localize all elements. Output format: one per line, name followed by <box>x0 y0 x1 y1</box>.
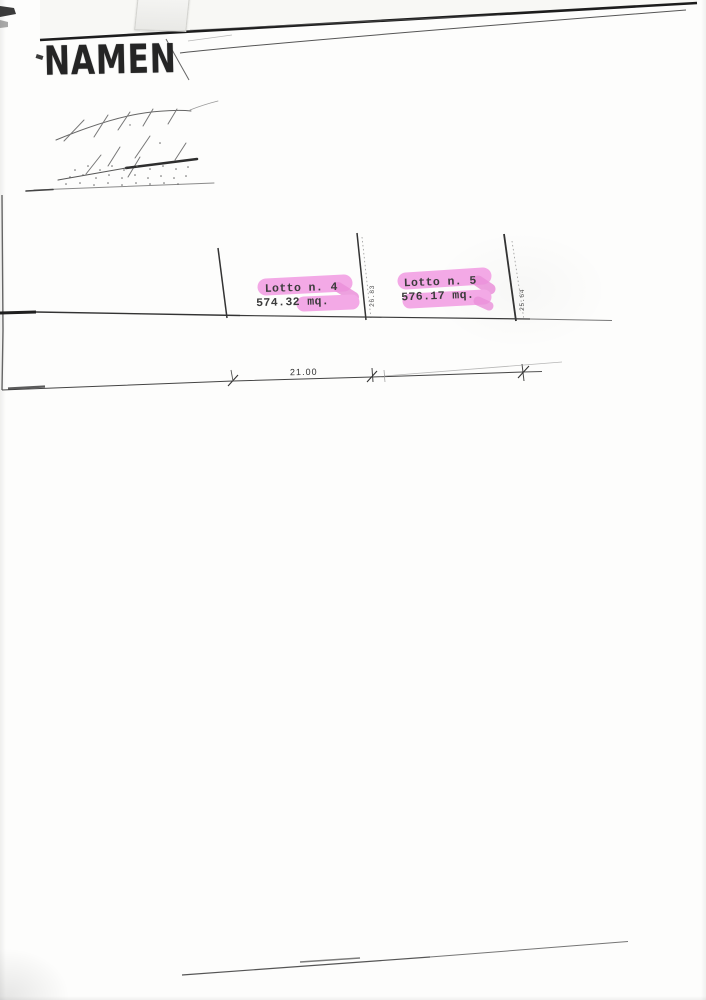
corner-mark-small <box>0 20 8 28</box>
scanned-plan-page: NAMEN Lotto n. 4 574.32 mq. Lotto n. 5 5… <box>0 0 706 1000</box>
stamp-text-label: NAMEN <box>44 39 177 82</box>
center-boundary-dimension: 26.83 <box>369 285 376 307</box>
site-plan-drawing <box>0 0 706 1000</box>
left-edge-line <box>2 195 3 390</box>
lot-5-label: Lotto n. 5 576.17 mq. <box>401 275 478 306</box>
bottom-sheet-edge <box>182 942 628 976</box>
paper-tab <box>134 0 190 32</box>
right-boundary-dimension: 25.64 <box>519 289 526 311</box>
lot-4-label: Lotto n. 4 574.32 mq. <box>256 281 339 311</box>
lot-4-area: 574.32 mq. <box>256 295 338 311</box>
dimension-line <box>2 362 562 390</box>
stipple-dots <box>65 124 189 186</box>
boundary-line-left <box>218 248 227 318</box>
boundary-line-right <box>504 234 516 321</box>
hatch-drawing <box>26 101 218 191</box>
lot-5-area: 576.17 mq. <box>401 289 477 306</box>
stamp-text: NAMEN <box>44 38 215 82</box>
boundary-line-center <box>357 233 366 320</box>
street-boundary-line <box>0 312 612 321</box>
width-dimension-label: 21.00 <box>290 367 318 377</box>
corner-mark <box>0 6 16 17</box>
